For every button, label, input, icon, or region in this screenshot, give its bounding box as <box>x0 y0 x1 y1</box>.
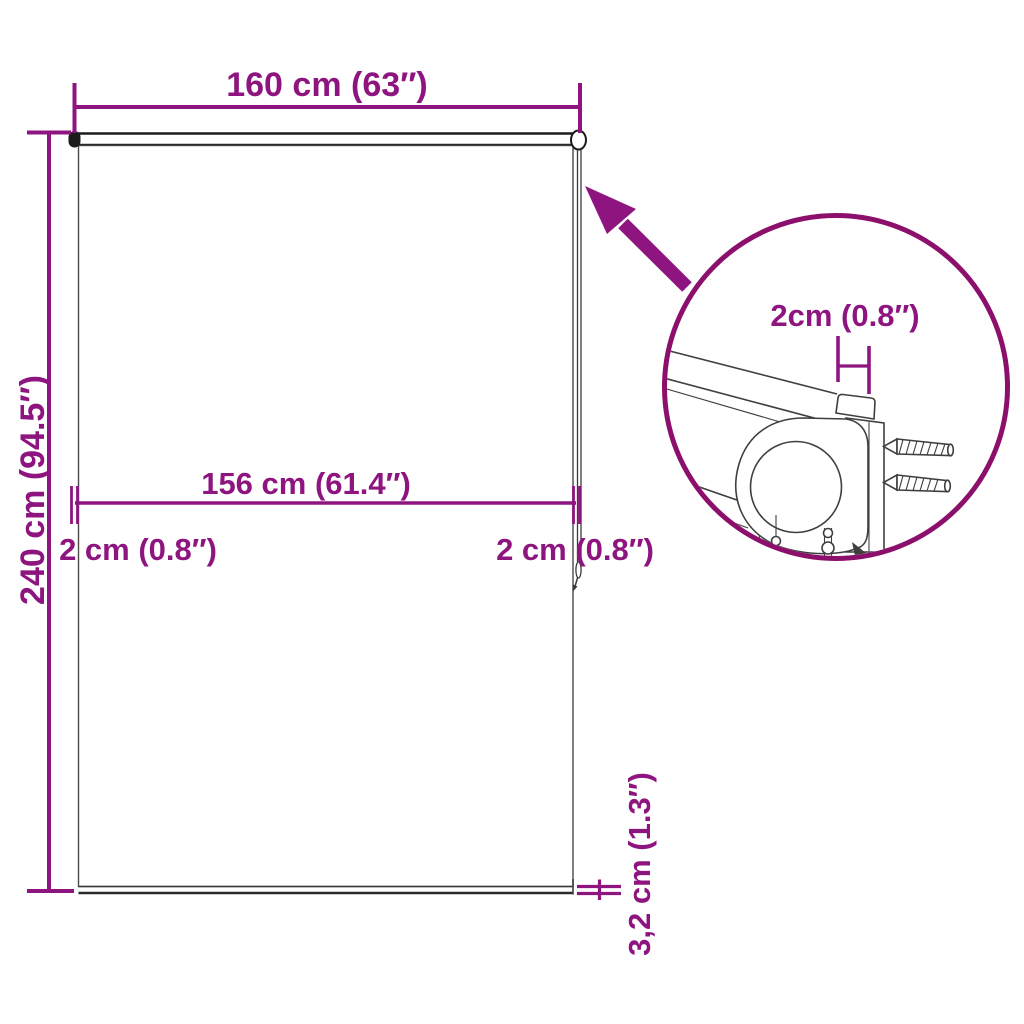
left-gap-label: 2 cm (0.8″) <box>59 532 217 567</box>
zoom-callout-arrow <box>585 186 687 287</box>
right-gap-label: 2 cm (0.8″) <box>496 532 654 567</box>
detail-circle-inset: 2cm (0.8″) <box>660 216 1008 570</box>
pull-chain <box>573 150 582 592</box>
fabric-width-label: 156 cm (61.4″) <box>201 466 411 501</box>
arrow-shaft <box>623 224 687 288</box>
diagram-svg: 160 cm (63″) 240 cm (94.5″) 156 cm (61.4… <box>0 0 1024 1024</box>
dimension-total-height: 240 cm (94.5″) <box>14 133 74 892</box>
total-width-label: 160 cm (63″) <box>226 66 428 104</box>
dimension-bottom-bar: 3,2 cm (1.3″) <box>577 772 657 956</box>
roller-blind <box>69 131 587 895</box>
bracket-detail-label: 2cm (0.8″) <box>770 298 919 333</box>
dimension-total-width: 160 cm (63″) <box>75 66 581 133</box>
blind-fabric <box>79 146 574 887</box>
roller-blind-dimension-diagram: 160 cm (63″) 240 cm (94.5″) 156 cm (61.4… <box>0 0 1024 1024</box>
total-height-label: 240 cm (94.5″) <box>14 375 52 605</box>
bottom-bar-label: 3,2 cm (1.3″) <box>622 772 657 956</box>
roller-right-cap <box>571 131 586 150</box>
